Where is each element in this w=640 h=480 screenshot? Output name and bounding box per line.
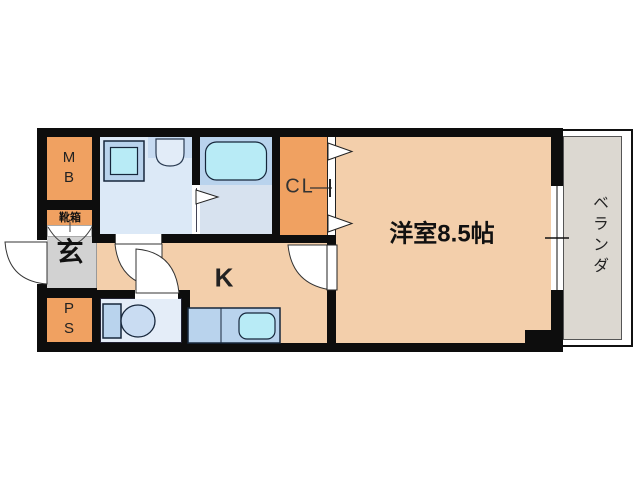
toilet-door-opening	[135, 290, 178, 299]
washroom-door-opening	[115, 234, 162, 244]
label-western-room: 洋室8.5帖	[389, 214, 494, 249]
sliding-window-icon	[551, 186, 563, 290]
wall-segment	[92, 234, 100, 243]
label-pipe-space: PS	[61, 300, 78, 340]
closet-door-strip	[327, 137, 336, 235]
room-toilet	[100, 298, 182, 343]
label-kitchen: K	[215, 263, 234, 294]
label-entrance: 玄	[57, 231, 84, 270]
label-veranda: ベランダ	[586, 194, 610, 278]
label-shoe-box: 靴箱	[59, 209, 81, 225]
front-door-opening	[37, 240, 47, 284]
bath-door	[192, 185, 200, 234]
wall-notch	[525, 330, 551, 343]
room-washroom	[100, 137, 192, 234]
floor-plan: MB 靴箱 玄 PS CL K 洋室8.5帖 ベランダ	[0, 0, 640, 480]
label-closet: CL	[285, 176, 315, 199]
room-bath	[200, 137, 272, 234]
label-meter-box: MB	[61, 149, 78, 189]
